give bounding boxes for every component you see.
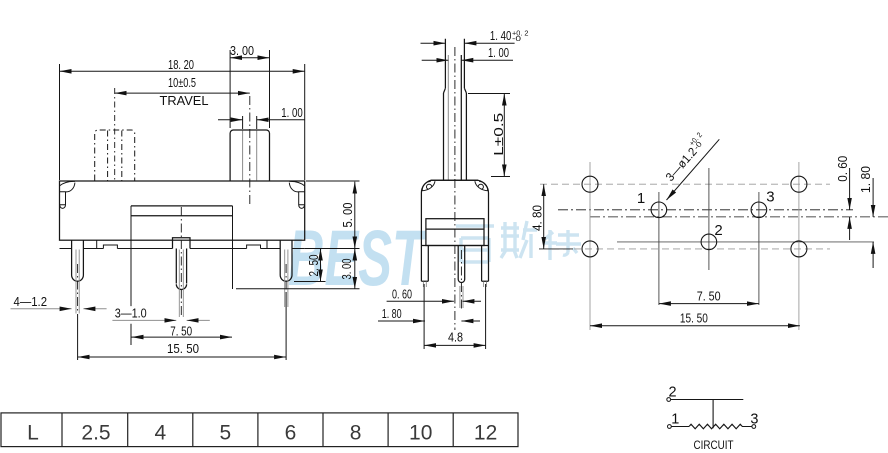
svg-text:3. 00: 3. 00 (230, 44, 254, 58)
svg-text:2.5: 2.5 (81, 422, 110, 445)
svg-text:L±0.5: L±0.5 (492, 113, 506, 156)
svg-text:TRAVEL: TRAVEL (160, 94, 209, 108)
svg-text:4. 80: 4. 80 (531, 205, 545, 231)
svg-text:3—1.0: 3—1.0 (115, 307, 147, 321)
svg-text:1. 00: 1. 00 (488, 46, 509, 60)
svg-text:CIRCUIT: CIRCUIT (694, 440, 734, 452)
svg-text:0. 60: 0. 60 (836, 156, 850, 182)
svg-text:2. 50: 2. 50 (307, 254, 321, 276)
svg-text:6: 6 (285, 422, 297, 445)
svg-text:15. 50: 15. 50 (680, 312, 708, 326)
svg-text:4: 4 (154, 422, 166, 445)
svg-text:3: 3 (750, 412, 758, 428)
svg-text:2: 2 (714, 222, 722, 239)
svg-text:7. 50: 7. 50 (170, 325, 192, 339)
svg-text:15. 50: 15. 50 (167, 342, 199, 356)
svg-text:3. 00: 3. 00 (340, 258, 354, 279)
svg-text:7. 50: 7. 50 (697, 290, 721, 304)
svg-text:8: 8 (350, 422, 362, 445)
svg-text:-0: -0 (512, 36, 521, 43)
svg-text:10: 10 (409, 422, 432, 445)
svg-text:12: 12 (474, 422, 497, 445)
svg-text:18. 20: 18. 20 (168, 58, 194, 72)
svg-text:1. 80: 1. 80 (382, 307, 402, 321)
svg-text:10±0.5: 10±0.5 (168, 76, 196, 90)
svg-text:1. 40: 1. 40 (490, 29, 512, 43)
svg-text:5. 00: 5. 00 (341, 202, 355, 227)
svg-text:0. 60: 0. 60 (392, 288, 412, 302)
svg-text:1: 1 (671, 412, 679, 428)
svg-text:5: 5 (220, 422, 232, 445)
svg-text:4—1.2: 4—1.2 (14, 295, 48, 309)
svg-text:3: 3 (766, 189, 774, 206)
svg-text:3—ø1.2: 3—ø1.2 (663, 145, 700, 184)
svg-text:1. 00: 1. 00 (281, 106, 303, 120)
svg-text:1. 80: 1. 80 (859, 166, 873, 193)
svg-text:1: 1 (637, 190, 645, 207)
svg-text:L: L (27, 422, 39, 445)
svg-text:4.8: 4.8 (448, 331, 463, 345)
svg-text:2: 2 (668, 385, 676, 401)
